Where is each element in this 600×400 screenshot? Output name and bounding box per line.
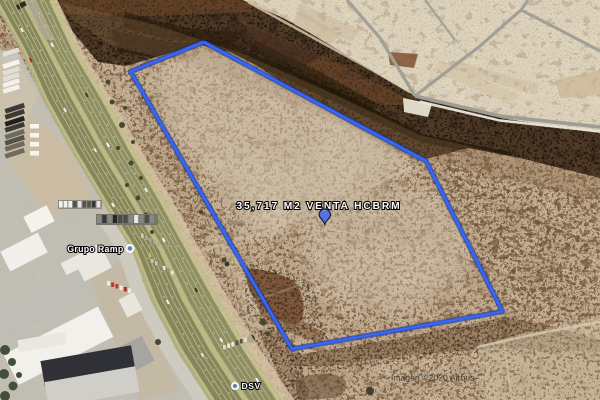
svg-text:Grupo Ramp: Grupo Ramp: [67, 244, 124, 254]
svg-text:DSV: DSV: [242, 381, 261, 391]
svg-text:35,717 M2 VENTA HCBRM: 35,717 M2 VENTA HCBRM: [236, 201, 401, 212]
svg-text:Imagen ©2020 Airbus: Imagen ©2020 Airbus: [391, 373, 475, 383]
